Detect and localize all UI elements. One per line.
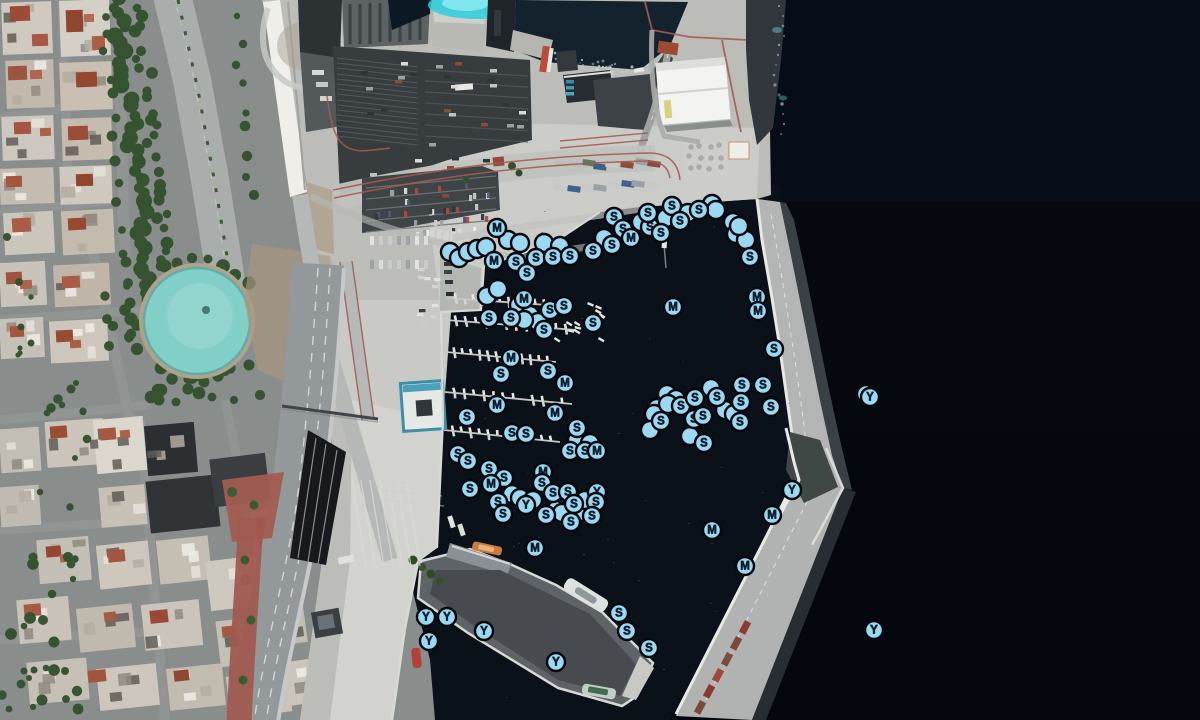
svg-text:S: S [589,318,597,330]
svg-text:S: S [736,417,744,429]
svg-text:S: S [532,253,540,265]
svg-text:S: S [566,251,574,263]
svg-text:S: S [588,511,596,523]
svg-text:Y: Y [552,657,560,669]
svg-text:S: S [767,402,775,414]
svg-text:S: S [770,344,778,356]
svg-text:S: S [677,401,685,413]
svg-text:S: S [737,397,745,409]
svg-text:S: S [485,313,493,325]
svg-text:S: S [549,488,557,500]
svg-text:M: M [530,543,540,555]
svg-text:S: S [549,252,557,264]
svg-text:S: S [589,246,597,258]
svg-text:S: S [507,313,515,325]
svg-text:S: S [623,626,631,638]
svg-text:M: M [506,353,516,365]
svg-text:M: M [740,561,750,573]
svg-text:S: S [544,366,552,378]
svg-text:M: M [489,256,499,268]
svg-text:S: S [500,473,508,485]
svg-text:S: S [746,252,754,264]
svg-text:Y: Y [422,612,430,624]
svg-text:S: S [573,423,581,435]
svg-text:S: S [645,643,653,655]
svg-text:S: S [713,392,721,404]
svg-text:S: S [691,393,699,405]
svg-text:S: S [567,517,575,529]
svg-text:S: S [508,428,516,440]
svg-text:M: M [486,479,496,491]
svg-text:S: S [759,380,767,392]
svg-text:S: S [657,416,665,428]
svg-text:S: S [608,240,616,252]
svg-text:S: S [499,509,507,521]
svg-text:Y: Y [870,625,878,637]
svg-text:S: S [463,412,471,424]
svg-text:M: M [626,233,636,245]
svg-text:S: S [570,499,578,511]
svg-text:M: M [707,525,717,537]
svg-text:S: S [738,380,746,392]
svg-text:S: S [657,228,665,240]
svg-text:M: M [753,306,763,318]
svg-text:S: S [668,201,676,213]
svg-text:S: S [466,484,474,496]
svg-text:M: M [492,223,502,235]
svg-text:Y: Y [866,392,874,404]
svg-text:M: M [519,294,529,306]
svg-text:M: M [668,302,678,314]
svg-text:M: M [492,400,502,412]
svg-text:S: S [464,456,472,468]
svg-text:S: S [695,205,703,217]
svg-text:S: S [542,510,550,522]
svg-text:S: S [485,464,493,476]
svg-text:S: S [700,438,708,450]
svg-text:S: S [560,301,568,313]
svg-text:Y: Y [522,500,530,512]
svg-text:S: S [497,369,505,381]
svg-text:Y: Y [443,612,451,624]
svg-text:Y: Y [480,626,488,638]
svg-text:Y: Y [788,485,796,497]
svg-text:S: S [699,411,707,423]
svg-text:M: M [767,510,777,522]
svg-text:S: S [644,208,652,220]
svg-text:M: M [560,378,570,390]
svg-text:S: S [615,608,623,620]
svg-text:S: S [566,446,574,458]
svg-text:S: S [676,216,684,228]
svg-text:M: M [550,408,560,420]
svg-text:M: M [592,446,602,458]
svg-text:S: S [522,429,530,441]
svg-text:S: S [523,268,531,280]
svg-text:Y: Y [425,636,433,648]
svg-text:S: S [546,305,554,317]
svg-text:S: S [540,325,548,337]
